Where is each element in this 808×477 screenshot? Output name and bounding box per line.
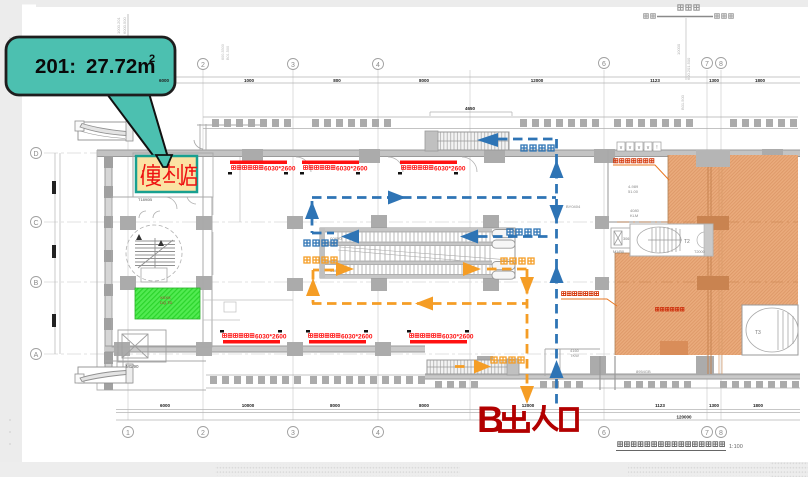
svg-text:51.00: 51.00 [628,189,639,194]
svg-text:1:100: 1:100 [729,444,743,450]
svg-text:6000: 6000 [160,403,171,408]
svg-text:27.72m: 27.72m [86,55,156,78]
svg-text:600.3500: 600.3500 [221,44,225,60]
svg-text:1800: 1800 [755,78,766,83]
svg-text:M1/90: M1/90 [126,364,139,369]
svg-text:6030*2600: 6030*2600 [341,334,373,341]
svg-text:3: 3 [291,62,295,69]
svg-text:8000: 8000 [330,403,341,408]
svg-text:2: 2 [201,430,205,437]
svg-text:!: ! [656,145,657,151]
svg-text:4: 4 [376,62,380,69]
svg-text:6030*2600: 6030*2600 [434,166,466,173]
svg-text:D: D [33,151,38,158]
svg-text:B01.500: B01.500 [680,94,685,110]
svg-text:BY0404: BY0404 [566,204,581,209]
svg-text:800: 800 [333,78,341,83]
svg-text:600.201.500: 600.201.500 [686,57,691,80]
svg-text:M1/B0: M1/B0 [613,250,624,254]
svg-text:1123: 1123 [650,78,660,83]
svg-text:1300: 1300 [709,403,720,408]
svg-text:120000: 120000 [676,415,692,420]
svg-text:8954GB: 8954GB [636,369,651,374]
svg-text:TKW: TKW [570,353,579,358]
svg-text:201:: 201: [35,55,76,78]
svg-text:10000: 10000 [676,43,681,55]
svg-text:8: 8 [719,430,723,437]
svg-text:T2: T2 [684,239,690,245]
svg-text:A: A [34,352,39,359]
svg-text:1123: 1123 [655,403,665,408]
svg-text:1300: 1300 [709,78,720,83]
svg-text:T3: T3 [755,330,761,336]
svg-text:T1890B: T1890B [138,197,152,202]
svg-text:1800: 1800 [753,403,764,408]
svg-text:1000: 1000 [244,78,255,83]
svg-text:DQ.TD: DQ.TD [160,300,173,305]
svg-text:12000: 12000 [522,403,535,408]
svg-text:T2000: T2000 [694,250,705,254]
svg-text:B01.500: B01.500 [226,46,230,60]
svg-text:6030*2600: 6030*2600 [255,334,287,341]
svg-text:6030*2600: 6030*2600 [336,166,368,173]
svg-text:8000: 8000 [419,78,430,83]
svg-text:3: 3 [291,430,295,437]
svg-text:2: 2 [149,53,155,65]
svg-text:1: 1 [126,430,130,437]
svg-text:6030*2600: 6030*2600 [264,166,296,173]
svg-text:10000: 10000 [242,403,255,408]
svg-text:B: B [34,280,39,287]
svg-text:6000: 6000 [159,78,170,83]
svg-text:C: C [33,220,38,227]
svg-text:4: 4 [376,430,380,437]
svg-text:8: 8 [719,61,723,68]
svg-text:7: 7 [705,430,709,437]
svg-text:8000: 8000 [419,403,430,408]
svg-text:6030*2600: 6030*2600 [442,334,474,341]
svg-text:4650: 4650 [465,106,476,111]
svg-text:6: 6 [602,61,606,68]
svg-text:KLM: KLM [630,213,638,218]
svg-text:6: 6 [602,430,606,437]
svg-text:B: B [477,399,504,440]
svg-text:1000.201: 1000.201 [116,17,121,34]
svg-text:12000: 12000 [531,78,544,83]
svg-text:7: 7 [705,61,709,68]
svg-text:6000.500: 6000.500 [122,17,127,34]
svg-text:2: 2 [201,62,205,69]
